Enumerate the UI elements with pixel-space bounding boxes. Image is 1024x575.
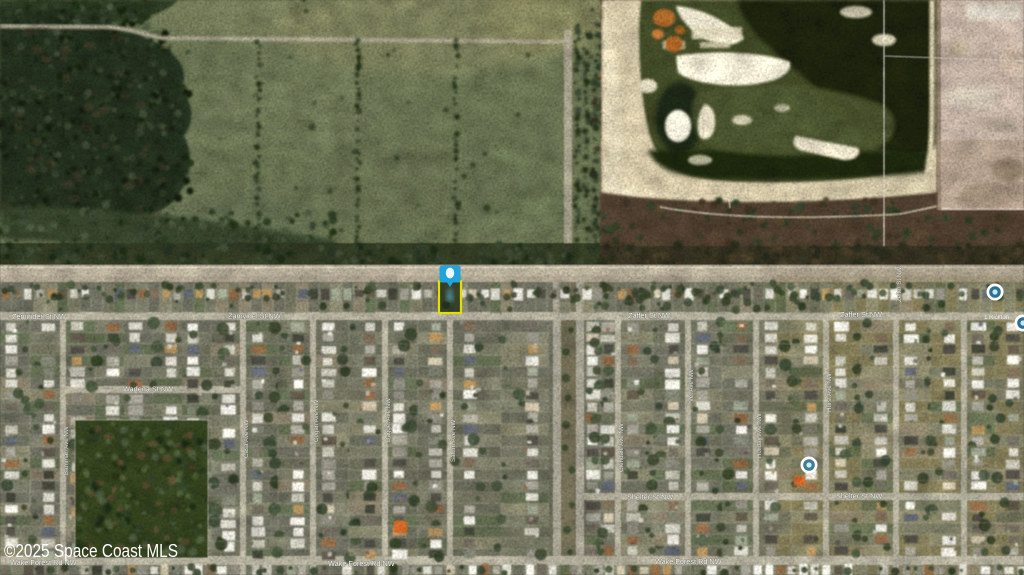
svg-text:Bamman Ave NW: Bamman Ave NW: [63, 426, 70, 475]
svg-text:©2025 Space Coast MLS: ©2025 Space Coast MLS: [4, 540, 178, 561]
svg-text:Zeminder St NW: Zeminder St NW: [12, 312, 66, 321]
svg-text:Wadena St NW: Wadena St NW: [123, 385, 173, 394]
svg-text:Zaffer St NW: Zaffer St NW: [628, 311, 670, 320]
svg-text:Wake Forest Rd NW: Wake Forest Rd NW: [655, 557, 722, 566]
svg-text:Casa Ave NW: Casa Ave NW: [243, 419, 250, 458]
svg-text:Zamvidel St NW: Zamvidel St NW: [228, 312, 281, 321]
svg-text:1 Rickton: 1 Rickton: [984, 315, 1009, 321]
svg-text:Wake Forest Rd NW: Wake Forest Rd NW: [328, 559, 395, 568]
svg-text:Hurst Ave NW: Hurst Ave NW: [826, 373, 833, 412]
svg-text:Saturn Ave NW: Saturn Ave NW: [450, 420, 457, 462]
svg-text:Shelter St NW: Shelter St NW: [627, 493, 673, 502]
svg-text:Zeller St NW: Zeller St NW: [896, 267, 903, 302]
svg-text:Glendale Ave NW: Glendale Ave NW: [618, 423, 625, 472]
svg-text:Dagget Ave NW: Dagget Ave NW: [385, 398, 392, 442]
svg-text:Vet Ave NW: Vet Ave NW: [688, 369, 695, 402]
svg-text:Holiday Ave NW: Holiday Ave NW: [756, 413, 763, 458]
svg-text:Zaffer St NW: Zaffer St NW: [840, 310, 882, 319]
svg-text:Shelter St NW: Shelter St NW: [836, 492, 882, 501]
svg-text:Cogan Ave NW: Cogan Ave NW: [313, 400, 320, 442]
